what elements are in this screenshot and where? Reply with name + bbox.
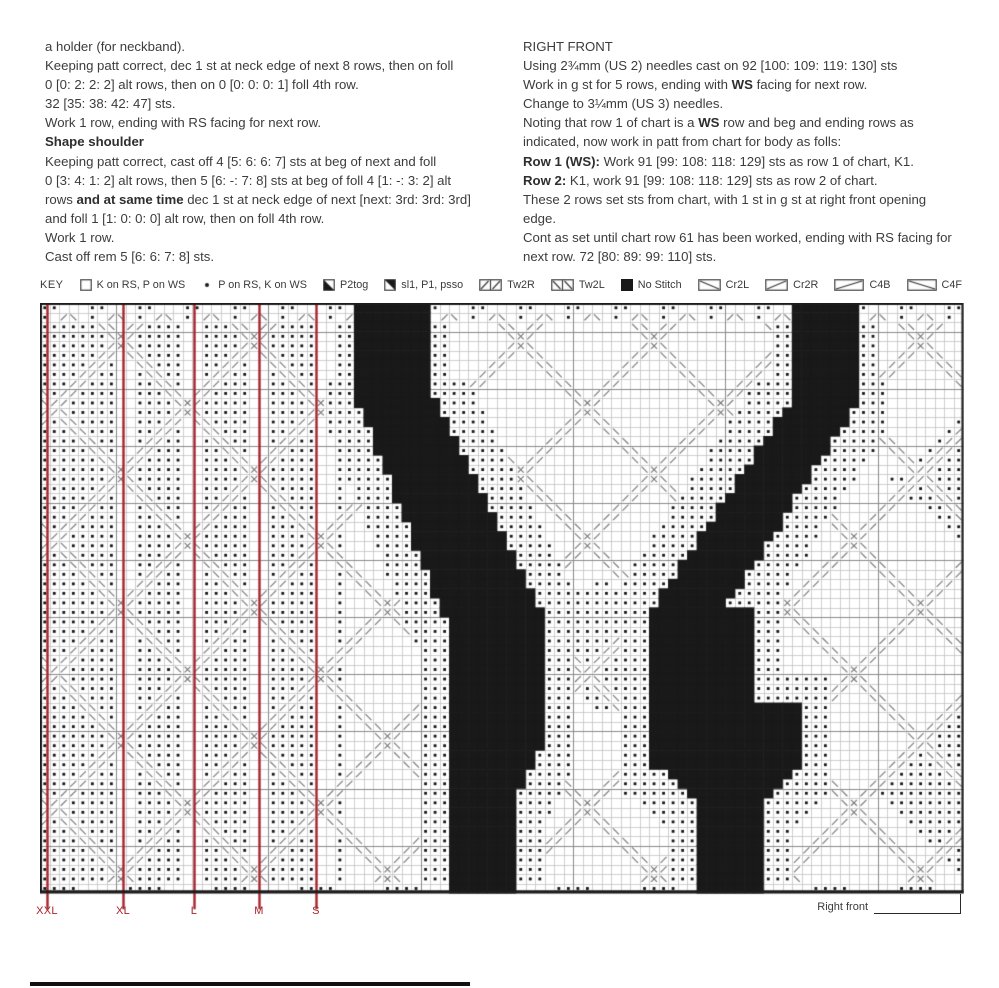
chart-key: KEY K on RS, P on WSP on RS, K on WSP2to… bbox=[40, 276, 962, 293]
key-item-label: Tw2L bbox=[579, 279, 605, 291]
key-item: C4F bbox=[907, 279, 962, 291]
text-line: Using 2¾mm (US 2) needles cast on 92 [10… bbox=[523, 56, 997, 75]
page-edge-bar bbox=[30, 982, 470, 986]
key-item: Cr2R bbox=[765, 279, 818, 291]
tw2r-icon bbox=[479, 279, 502, 291]
text-line: indicated, now work in patt from chart f… bbox=[523, 132, 997, 151]
key-item: P on RS, K on WS bbox=[201, 279, 307, 291]
size-label-l: L bbox=[191, 905, 197, 917]
key-item: C4B bbox=[834, 279, 890, 291]
c4f-icon bbox=[907, 279, 937, 291]
cr2l-icon bbox=[698, 279, 721, 291]
text-line: Keeping patt correct, dec 1 st at neck e… bbox=[45, 56, 519, 75]
size-label-xl: XL bbox=[116, 905, 130, 917]
p2tog-icon bbox=[323, 279, 335, 291]
key-item: P2tog bbox=[323, 279, 368, 291]
text-line: Shape shoulder bbox=[45, 132, 519, 151]
key-item: No Stitch bbox=[621, 279, 682, 291]
key-item-label: No Stitch bbox=[638, 279, 682, 291]
key-item-label: Tw2R bbox=[507, 279, 535, 291]
pattern-page: a holder (for neckband).Keeping patt cor… bbox=[0, 0, 999, 988]
text-line: Work 1 row, ending with RS facing for ne… bbox=[45, 113, 519, 132]
text-line: RIGHT FRONT bbox=[523, 37, 997, 56]
key-title: KEY bbox=[40, 279, 64, 291]
key-item: Cr2L bbox=[698, 279, 749, 291]
annotation-bracket-line bbox=[874, 894, 961, 914]
chart-grid bbox=[40, 303, 964, 915]
key-item-label: P on RS, K on WS bbox=[218, 279, 307, 291]
text-line: Cont as set until chart row 61 has been … bbox=[523, 228, 997, 247]
c4b-icon bbox=[834, 279, 864, 291]
key-item-label: P2tog bbox=[340, 279, 368, 291]
text-line: and foll 1 [1: 0: 0: 0] alt row, then on… bbox=[45, 209, 519, 228]
text-line: Change to 3¼mm (US 3) needles. bbox=[523, 94, 997, 113]
key-item-label: Cr2L bbox=[726, 279, 749, 291]
right-front-annotation: Right front bbox=[817, 901, 868, 913]
text-line: Work in g st for 5 rows, ending with WS … bbox=[523, 75, 997, 94]
text-line: edge. bbox=[523, 209, 997, 228]
text-line: Noting that row 1 of chart is a WS row a… bbox=[523, 113, 997, 132]
text-line: Cast off rem 5 [6: 6: 7: 8] sts. bbox=[45, 247, 519, 266]
key-item-label: K on RS, P on WS bbox=[97, 279, 186, 291]
key-item-label: sl1, P1, psso bbox=[401, 279, 463, 291]
key-item-label: Cr2R bbox=[793, 279, 818, 291]
text-line: 32 [35: 38: 42: 47] sts. bbox=[45, 94, 519, 113]
key-item-label: C4B bbox=[869, 279, 890, 291]
tw2l-icon bbox=[551, 279, 574, 291]
knitting-chart: Right front XXLXLLMS bbox=[40, 303, 964, 943]
key-item: Tw2L bbox=[551, 279, 605, 291]
text-line: next row. 72 [80: 89: 99: 110] sts. bbox=[523, 247, 997, 266]
text-line: 0 [0: 2: 2: 2] alt rows, then on 0 [0: 0… bbox=[45, 75, 519, 94]
no-stitch-icon bbox=[621, 279, 633, 291]
text-line: Row 2: K1, work 91 [99: 108: 118: 129] s… bbox=[523, 171, 997, 190]
dot-icon bbox=[201, 279, 213, 291]
size-label-s: S bbox=[312, 905, 320, 917]
left-instructions-column: a holder (for neckband).Keeping patt cor… bbox=[45, 37, 519, 266]
text-line: Work 1 row. bbox=[45, 228, 519, 247]
key-item-label: C4F bbox=[942, 279, 962, 291]
size-label-xxl: XXL bbox=[36, 905, 58, 917]
psso-icon bbox=[384, 279, 396, 291]
key-item: Tw2R bbox=[479, 279, 535, 291]
text-line: 0 [3: 4: 1: 2] alt rows, then 5 [6: -: 7… bbox=[45, 171, 519, 190]
cr2r-icon bbox=[765, 279, 788, 291]
right-front-section: RIGHT FRONTUsing 2¾mm (US 2) needles cas… bbox=[523, 37, 997, 266]
text-line: rows and at same time dec 1 st at neck e… bbox=[45, 190, 519, 209]
square-empty-icon bbox=[80, 279, 92, 291]
text-line: Row 1 (WS): Work 91 [99: 108: 118: 129] … bbox=[523, 152, 997, 171]
text-line: These 2 rows set sts from chart, with 1 … bbox=[523, 190, 997, 209]
key-item: sl1, P1, psso bbox=[384, 279, 463, 291]
size-label-m: M bbox=[254, 905, 263, 917]
text-line: a holder (for neckband). bbox=[45, 37, 519, 56]
text-line: Keeping patt correct, cast off 4 [5: 6: … bbox=[45, 152, 519, 171]
key-item: K on RS, P on WS bbox=[80, 279, 186, 291]
